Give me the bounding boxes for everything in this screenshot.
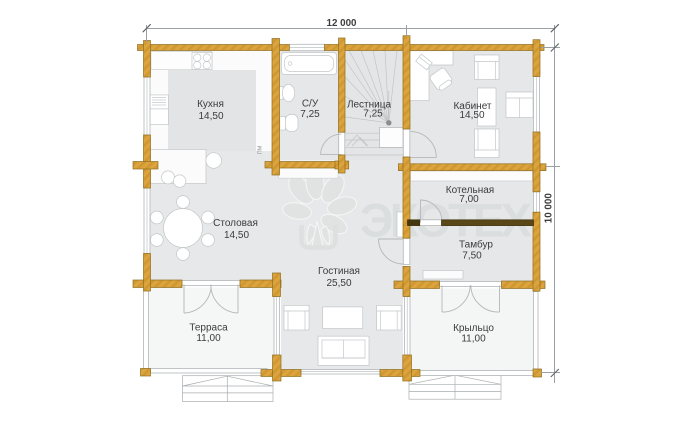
svg-text:14,50: 14,50 — [224, 230, 249, 241]
svg-text:14,50: 14,50 — [459, 110, 484, 121]
svg-text:11,00: 11,00 — [461, 334, 486, 345]
svg-text:7,25: 7,25 — [300, 109, 320, 120]
svg-text:7,25: 7,25 — [363, 109, 383, 120]
svg-text:Терраса: Терраса — [189, 323, 228, 334]
svg-text:Столовая: Столовая — [213, 218, 258, 229]
svg-text:12 000: 12 000 — [327, 18, 358, 29]
svg-text:ПМ: ПМ — [258, 145, 264, 154]
svg-text:С/У: С/У — [302, 99, 319, 110]
svg-text:Гостиная: Гостиная — [318, 266, 360, 277]
svg-text:14,50: 14,50 — [198, 111, 223, 122]
svg-text:Крыльцо: Крыльцо — [453, 323, 494, 334]
svg-text:10 000: 10 000 — [544, 193, 555, 224]
svg-text:Тамбур: Тамбур — [459, 239, 493, 251]
svg-text:7,50: 7,50 — [462, 251, 482, 262]
svg-text:7,00: 7,00 — [459, 194, 479, 205]
svg-text:11,00: 11,00 — [196, 333, 221, 344]
svg-text:25,50: 25,50 — [326, 278, 351, 289]
svg-text:Кухня: Кухня — [197, 99, 224, 110]
